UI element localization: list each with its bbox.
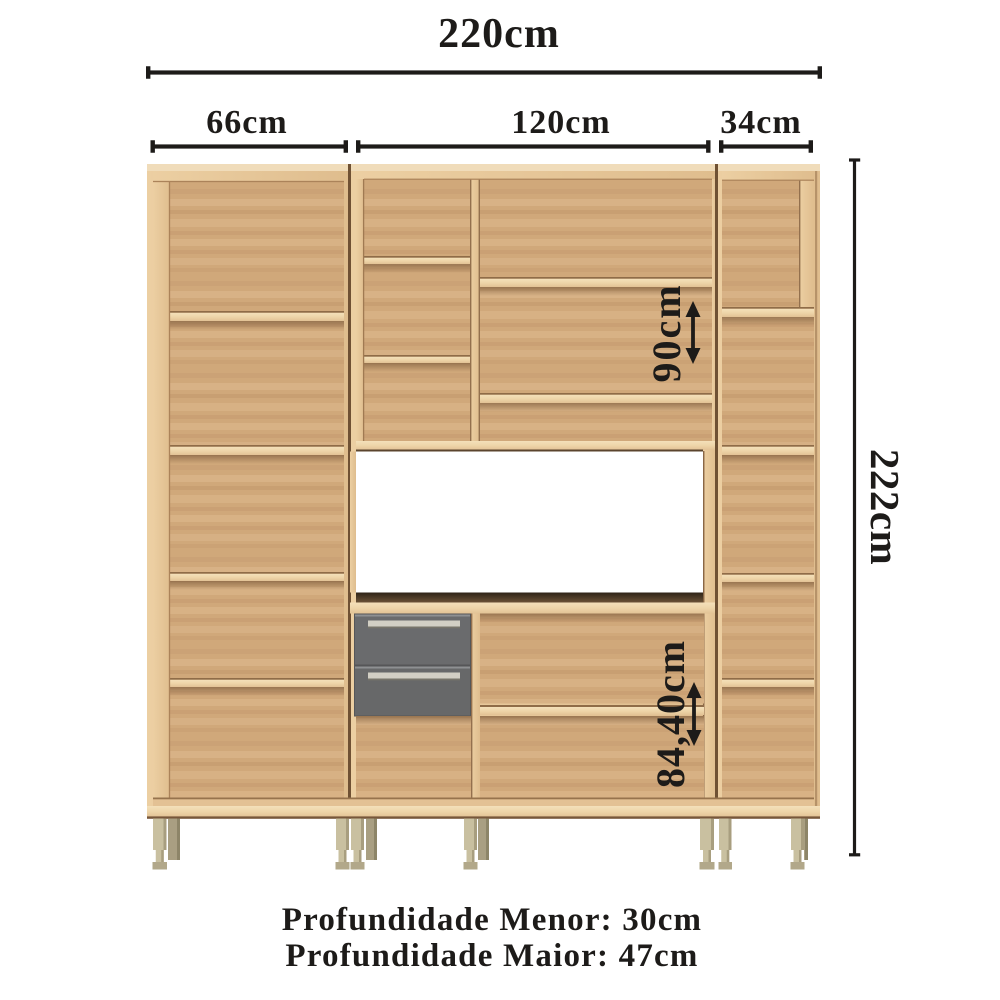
svg-text:90cm: 90cm: [644, 283, 689, 382]
svg-text:120cm: 120cm: [511, 104, 610, 141]
svg-text:34cm: 34cm: [720, 104, 801, 141]
svg-text:66cm: 66cm: [206, 104, 287, 141]
svg-text:Profundidade Maior: 47cm: Profundidade Maior: 47cm: [285, 938, 698, 974]
svg-text:84,40cm: 84,40cm: [648, 640, 693, 788]
svg-text:222cm: 222cm: [862, 449, 908, 565]
svg-text:Profundidade Menor: 30cm: Profundidade Menor: 30cm: [282, 902, 703, 938]
svg-text:220cm: 220cm: [438, 11, 560, 57]
